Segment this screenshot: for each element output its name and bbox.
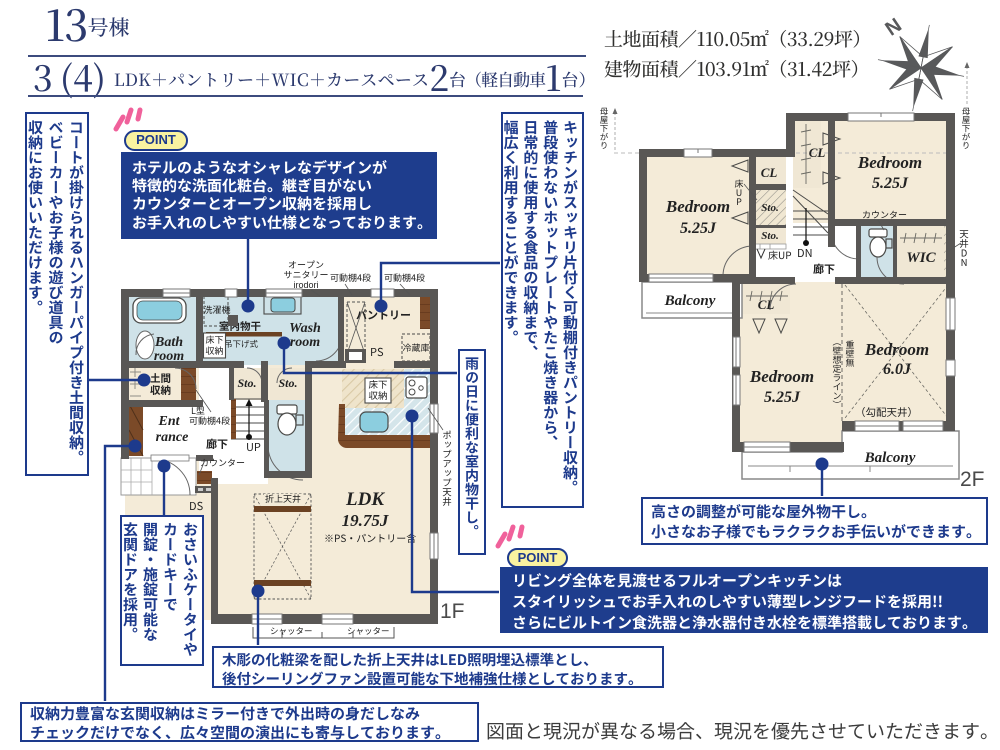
svg-text:Sto.: Sto. <box>278 376 297 390</box>
svg-text:CL: CL <box>758 297 775 312</box>
svg-text:2F: 2F <box>960 468 985 491</box>
svg-text:Wash: Wash <box>289 321 321 336</box>
svg-text:room: room <box>154 349 184 364</box>
svg-text:room: room <box>290 335 320 350</box>
svg-text:収納: 収納 <box>150 383 171 398</box>
svg-text:UP: UP <box>246 439 261 455</box>
svg-text:可動棚4段: 可動棚4段 <box>330 271 371 284</box>
svg-text:可動棚4段: 可動棚4段 <box>189 414 230 427</box>
svg-text:床UP: 床UP <box>733 179 746 206</box>
svg-text:6.0J: 6.0J <box>883 361 912 378</box>
svg-text:PS: PS <box>370 344 384 360</box>
svg-text:CL: CL <box>809 145 826 160</box>
svg-text:Sto.: Sto. <box>237 376 256 390</box>
svg-text:Sto.: Sto. <box>761 230 778 242</box>
svg-text:5.25J: 5.25J <box>872 175 909 192</box>
svg-text:カウンター: カウンター <box>862 208 907 221</box>
svg-text:廊下: 廊下 <box>206 436 228 452</box>
svg-text:カウンター: カウンター <box>200 456 245 469</box>
svg-text:可動棚4段: 可動棚4段 <box>384 271 425 284</box>
svg-text:Ent: Ent <box>157 414 180 429</box>
svg-text:吊下げ式: 吊下げ式 <box>224 338 259 350</box>
svg-text:WIC: WIC <box>906 250 936 266</box>
svg-text:Bedroom: Bedroom <box>749 367 814 386</box>
svg-text:シャッター: シャッター <box>270 625 313 637</box>
svg-text:Balcony: Balcony <box>864 450 916 466</box>
svg-text:母屋下がり: 母屋下がり <box>960 107 972 150</box>
svg-text:irodori: irodori <box>293 280 318 290</box>
svg-text:5.25J: 5.25J <box>680 220 717 237</box>
svg-text:収納: 収納 <box>205 344 223 357</box>
svg-text:（勾配天井）: （勾配天井） <box>855 405 918 420</box>
svg-text:Bath: Bath <box>154 335 183 350</box>
svg-text:（壁想定ライン）: （壁想定ライン） <box>831 337 844 409</box>
svg-text:折上天井: 折上天井 <box>265 492 301 505</box>
svg-text:DS: DS <box>189 498 204 514</box>
svg-text:床UP: 床UP <box>768 247 792 262</box>
svg-text:19.75J: 19.75J <box>342 511 389 530</box>
svg-text:Sto.: Sto. <box>761 202 778 214</box>
svg-text:重壁無: 重壁無 <box>844 340 857 367</box>
svg-text:ポップアップ天井: ポップアップ天井 <box>440 430 454 506</box>
svg-text:CL: CL <box>761 165 778 180</box>
svg-text:N: N <box>881 14 905 40</box>
svg-text:冷蔵庫: 冷蔵庫 <box>402 341 429 354</box>
svg-text:LDK: LDK <box>345 489 385 510</box>
svg-text:廊下: 廊下 <box>813 261 835 277</box>
svg-text:rance: rance <box>156 430 189 445</box>
svg-text:洗濯機: 洗濯機 <box>203 303 230 316</box>
svg-text:収納: 収納 <box>368 388 387 402</box>
svg-text:室内物干: 室内物干 <box>219 319 261 334</box>
svg-text:5.25J: 5.25J <box>764 389 801 406</box>
svg-text:シャッター: シャッター <box>347 625 390 637</box>
svg-text:Bedroom: Bedroom <box>857 153 922 172</box>
svg-text:母屋下がり: 母屋下がり <box>598 107 610 150</box>
svg-text:Balcony: Balcony <box>664 293 716 309</box>
svg-text:Bedroom: Bedroom <box>864 340 929 359</box>
svg-text:※PS・パントリー含: ※PS・パントリー含 <box>324 530 416 545</box>
svg-text:天井DN: 天井DN <box>957 229 971 267</box>
svg-text:1F: 1F <box>440 600 465 623</box>
svg-text:Bedroom: Bedroom <box>665 197 730 216</box>
svg-text:DN: DN <box>797 245 813 261</box>
